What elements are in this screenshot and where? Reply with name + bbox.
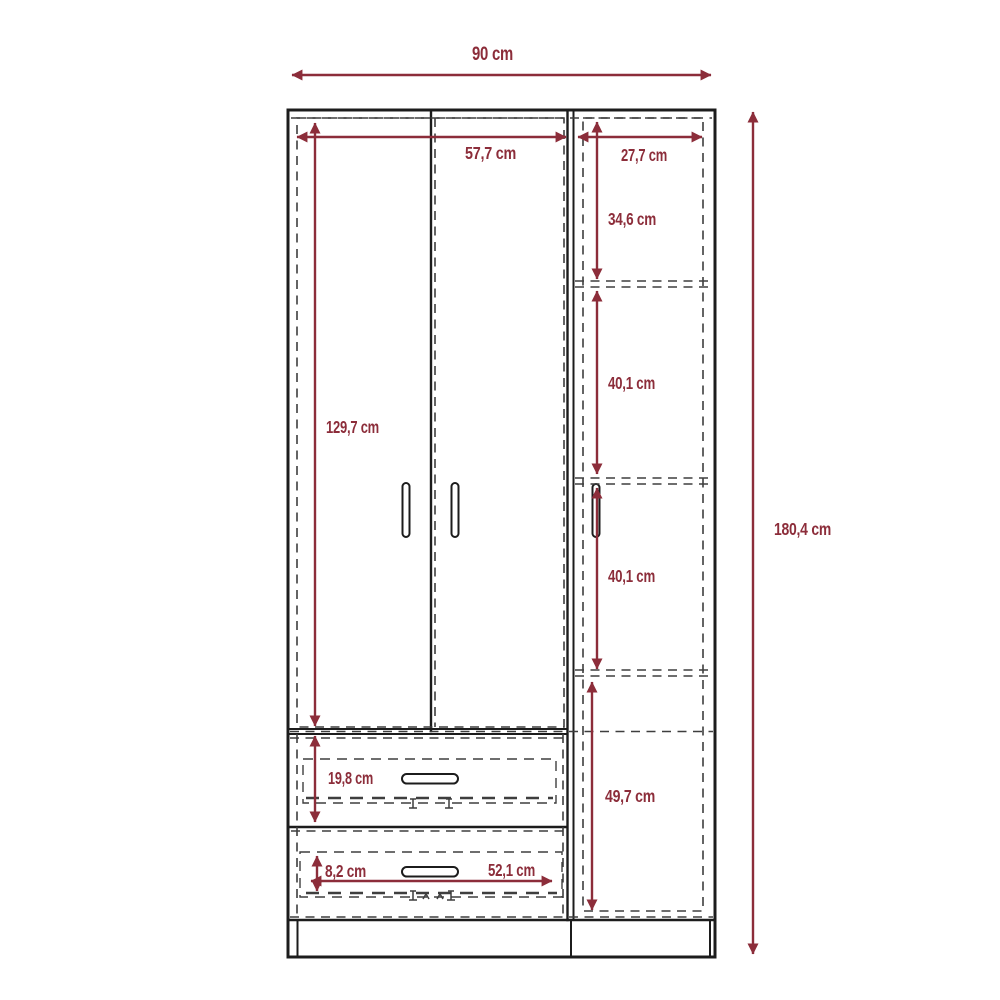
- dim-label-overall-width: 90 cm: [472, 44, 513, 65]
- diagram-canvas: 90 cm 180,4 cm 57,7 cm 27,7 cm 129,7 cm …: [0, 0, 1000, 1000]
- wardrobe-outline: [288, 110, 715, 957]
- dim-label-overall-height: 180,4 cm: [774, 519, 831, 539]
- right-door-handle: [452, 483, 459, 537]
- wardrobe-dimension-diagram: 90 cm 180,4 cm 57,7 cm 27,7 cm 129,7 cm …: [0, 0, 1000, 1000]
- bottom-drawer-handle: [402, 867, 458, 877]
- dim-label-right-lower-compartment: 40,1 cm: [608, 566, 655, 586]
- dim-label-right-inner-width: 27,7 cm: [621, 145, 667, 165]
- dim-label-door-height: 129,7 cm: [326, 417, 379, 437]
- top-drawer-handle: [402, 774, 458, 784]
- dim-label-bottom-drawer-inner-height: 8,2 cm: [325, 861, 366, 881]
- dim-label-right-middle-compartment: 40,1 cm: [608, 373, 655, 393]
- left-door-handle: [403, 483, 410, 537]
- cabinet-body: [288, 110, 715, 957]
- dim-label-right-bottom-compartment: 49,7 cm: [605, 786, 655, 806]
- dim-label-bottom-drawer-inner-width: 52,1 cm: [488, 860, 535, 880]
- dim-label-top-drawer-height: 19,8 cm: [328, 768, 373, 788]
- dim-label-right-top-compartment: 34,6 cm: [608, 209, 656, 229]
- dim-label-left-inner-width: 57,7 cm: [465, 143, 516, 163]
